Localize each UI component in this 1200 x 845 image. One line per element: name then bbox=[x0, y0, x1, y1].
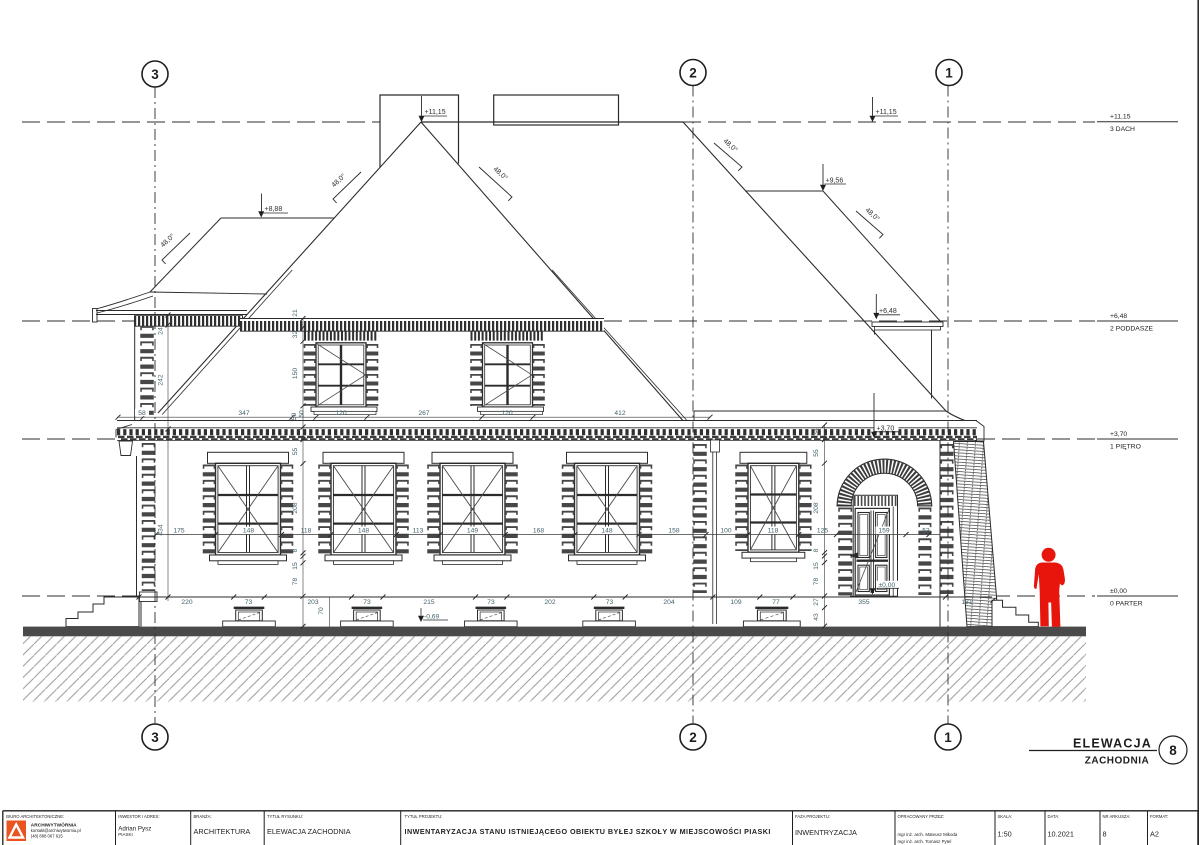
svg-text:INWESTOR I ADRES:: INWESTOR I ADRES: bbox=[118, 814, 159, 819]
svg-text:355: 355 bbox=[858, 599, 869, 606]
svg-text:mgr inż. arch. Mateusz Mikoda: mgr inż. arch. Mateusz Mikoda bbox=[898, 832, 958, 837]
svg-text:1: 1 bbox=[945, 66, 953, 81]
svg-text:ELEWACJA: ELEWACJA bbox=[1073, 737, 1152, 751]
svg-text:3 DACH: 3 DACH bbox=[1110, 126, 1135, 133]
svg-text:73: 73 bbox=[606, 599, 614, 606]
svg-text:220: 220 bbox=[181, 599, 192, 606]
svg-text:INWENTARYZACJA STANU ISTNIEJĄC: INWENTARYZACJA STANU ISTNIEJĄCEGO OBIEKT… bbox=[405, 827, 771, 836]
svg-text:50: 50 bbox=[291, 413, 298, 421]
svg-text:3: 3 bbox=[151, 730, 159, 745]
svg-text:2 PODDASZE: 2 PODDASZE bbox=[1110, 326, 1154, 333]
svg-text:FAZA PROJEKTU:: FAZA PROJEKTU: bbox=[795, 814, 830, 819]
svg-text:2: 2 bbox=[689, 730, 697, 745]
svg-text:±0,00: ±0,00 bbox=[1110, 588, 1127, 595]
svg-text:A2: A2 bbox=[1150, 830, 1159, 839]
svg-text:120: 120 bbox=[501, 410, 512, 417]
svg-text:2: 2 bbox=[689, 66, 697, 81]
svg-text:70: 70 bbox=[318, 607, 325, 615]
svg-text:+11,15: +11,15 bbox=[1110, 114, 1131, 121]
svg-text:118: 118 bbox=[301, 528, 312, 535]
svg-text:ELEWACJA ZACHODNIA: ELEWACJA ZACHODNIA bbox=[267, 827, 351, 836]
svg-text:1:50: 1:50 bbox=[998, 830, 1012, 839]
svg-text:+6,48: +6,48 bbox=[1110, 313, 1127, 320]
svg-text:125: 125 bbox=[817, 528, 828, 535]
svg-text:118: 118 bbox=[768, 528, 779, 535]
svg-text:TYTUŁ PROJEKTU:: TYTUŁ PROJEKTU: bbox=[405, 814, 443, 819]
svg-text:73: 73 bbox=[245, 599, 253, 606]
svg-text:78: 78 bbox=[292, 578, 299, 586]
svg-text:21: 21 bbox=[292, 309, 299, 317]
svg-text:8: 8 bbox=[813, 548, 820, 552]
svg-text:+3,70: +3,70 bbox=[1110, 431, 1127, 438]
svg-text:BIURO ARCHITEKTONICZNE:: BIURO ARCHITEKTONICZNE: bbox=[6, 814, 64, 819]
svg-text:-0,69: -0,69 bbox=[424, 613, 440, 620]
svg-text:208: 208 bbox=[813, 502, 820, 513]
svg-text:77: 77 bbox=[772, 599, 780, 606]
svg-text:FORMAT:: FORMAT: bbox=[1150, 814, 1168, 819]
svg-text:mgr inż. arch. Tomasz Pytel: mgr inż. arch. Tomasz Pytel bbox=[898, 839, 952, 844]
svg-text:15: 15 bbox=[813, 562, 820, 570]
svg-text:55: 55 bbox=[813, 449, 820, 457]
svg-text:SKALA:: SKALA: bbox=[998, 814, 1013, 819]
svg-text:50: 50 bbox=[299, 410, 306, 418]
svg-text:27: 27 bbox=[813, 598, 820, 606]
svg-text:204: 204 bbox=[663, 599, 674, 606]
svg-text:PIASKI: PIASKI bbox=[118, 832, 133, 837]
svg-text:55: 55 bbox=[292, 448, 299, 456]
svg-text:8: 8 bbox=[292, 548, 299, 552]
svg-text:131: 131 bbox=[961, 599, 972, 606]
svg-text:ZACHODNIA: ZACHODNIA bbox=[1085, 756, 1150, 767]
svg-text:412: 412 bbox=[614, 410, 625, 417]
svg-text:3: 3 bbox=[151, 67, 159, 82]
svg-text:120: 120 bbox=[335, 410, 346, 417]
svg-text:203: 203 bbox=[307, 599, 318, 606]
svg-text:OPRACOWANY PRZEZ:: OPRACOWANY PRZEZ: bbox=[898, 814, 945, 819]
svg-text:148: 148 bbox=[601, 528, 612, 535]
svg-text:73: 73 bbox=[487, 599, 495, 606]
svg-text:32: 32 bbox=[292, 331, 299, 339]
svg-text:158: 158 bbox=[668, 528, 679, 535]
svg-text:10.2021: 10.2021 bbox=[1048, 830, 1074, 839]
svg-text:1: 1 bbox=[944, 730, 952, 745]
svg-text:100: 100 bbox=[720, 528, 731, 535]
svg-text:168: 168 bbox=[533, 528, 544, 535]
svg-text:159: 159 bbox=[878, 528, 889, 535]
svg-text:BRANŻA:: BRANŻA: bbox=[194, 814, 212, 819]
svg-text:15: 15 bbox=[292, 562, 299, 570]
svg-text:208: 208 bbox=[292, 502, 299, 513]
svg-text:(48) 888 067 615: (48) 888 067 615 bbox=[31, 833, 64, 838]
svg-text:+11,15: +11,15 bbox=[876, 109, 897, 116]
svg-text:+11,15: +11,15 bbox=[425, 109, 446, 116]
svg-text:+8,88: +8,88 bbox=[265, 206, 283, 213]
svg-text:0 PARTER: 0 PARTER bbox=[1110, 601, 1143, 608]
svg-text:148: 148 bbox=[358, 528, 369, 535]
svg-text:24: 24 bbox=[158, 327, 165, 335]
svg-text:242: 242 bbox=[158, 374, 165, 385]
svg-text:73: 73 bbox=[363, 599, 371, 606]
svg-text:NR ARKUSZA:: NR ARKUSZA: bbox=[1103, 814, 1131, 819]
svg-text:1 PIĘTRO: 1 PIĘTRO bbox=[1110, 444, 1141, 451]
svg-text:150: 150 bbox=[292, 368, 299, 379]
svg-text:109: 109 bbox=[730, 599, 741, 606]
svg-text:8: 8 bbox=[1169, 743, 1177, 758]
svg-text:43: 43 bbox=[813, 613, 820, 621]
svg-text:149: 149 bbox=[467, 528, 478, 535]
svg-text:8: 8 bbox=[1103, 830, 1107, 839]
svg-text:175: 175 bbox=[173, 528, 184, 535]
svg-text:+9,56: +9,56 bbox=[826, 178, 844, 185]
svg-text:+6,48: +6,48 bbox=[879, 308, 897, 315]
svg-text:78: 78 bbox=[813, 578, 820, 586]
svg-text:347: 347 bbox=[238, 410, 249, 417]
svg-text:113: 113 bbox=[413, 528, 424, 535]
svg-text:53: 53 bbox=[922, 528, 930, 535]
svg-text:kontakt@archiwytwornia.pl: kontakt@archiwytwornia.pl bbox=[31, 828, 81, 833]
svg-text:+3,70: +3,70 bbox=[877, 425, 895, 432]
svg-text:INWENTRYZACJA: INWENTRYZACJA bbox=[795, 828, 857, 837]
svg-text:434: 434 bbox=[158, 524, 165, 535]
svg-text:TYTUŁ RYSUNKU:: TYTUŁ RYSUNKU: bbox=[267, 814, 303, 819]
svg-text:148: 148 bbox=[243, 528, 254, 535]
svg-text:202: 202 bbox=[544, 599, 555, 606]
svg-text:215: 215 bbox=[423, 599, 434, 606]
svg-text:34: 34 bbox=[813, 428, 820, 436]
svg-text:58: 58 bbox=[138, 410, 146, 417]
svg-text:267: 267 bbox=[418, 410, 429, 417]
svg-text:ARCHITEKTURA: ARCHITEKTURA bbox=[194, 827, 251, 836]
svg-text:DATA:: DATA: bbox=[1048, 814, 1060, 819]
